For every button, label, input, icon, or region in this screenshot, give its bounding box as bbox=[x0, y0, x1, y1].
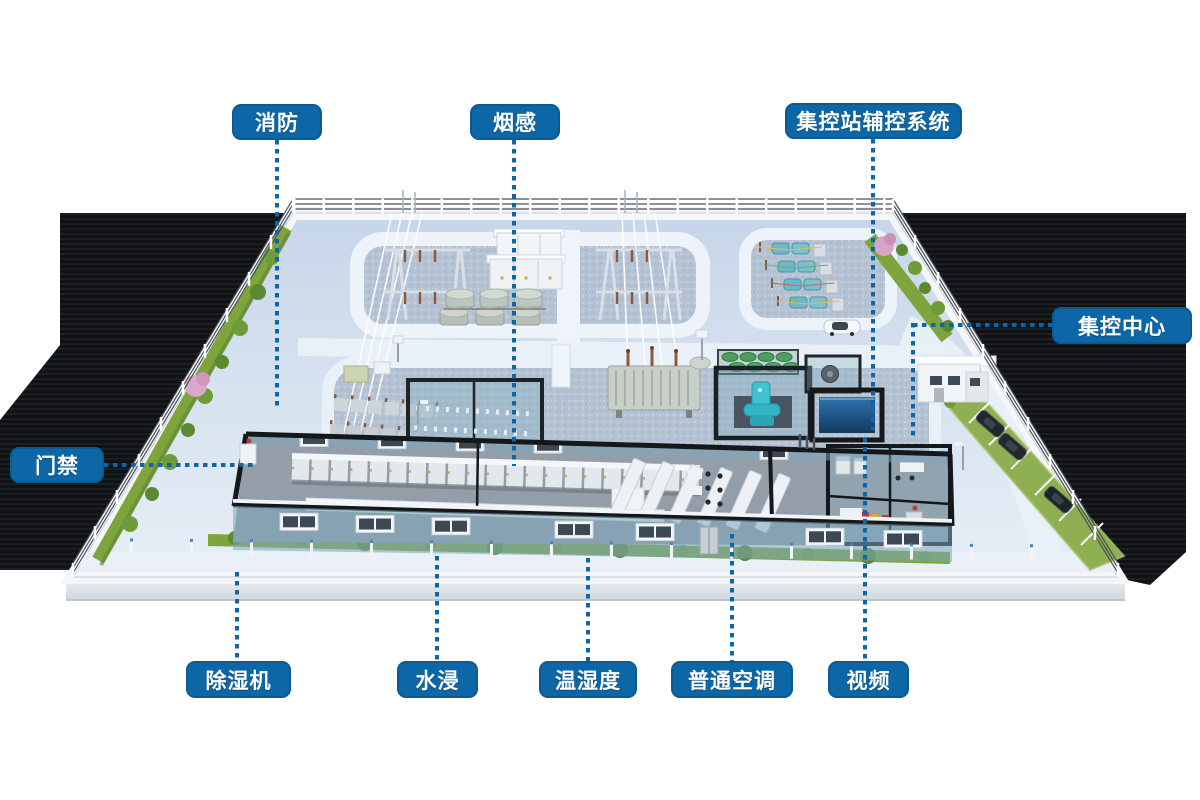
connector-access-control bbox=[104, 463, 253, 467]
connector-temperature-humidity bbox=[586, 558, 590, 661]
label-control-center[interactable]: 集控中心 bbox=[1052, 307, 1192, 344]
connector-standard-ac bbox=[730, 534, 734, 661]
label-video[interactable]: 视频 bbox=[828, 661, 909, 698]
switchyard-cabinets bbox=[487, 229, 565, 289]
label-water-leak[interactable]: 水浸 bbox=[397, 661, 478, 698]
robot-glass-room bbox=[716, 368, 810, 438]
white-car bbox=[824, 320, 860, 336]
connector-dehumidifier bbox=[235, 572, 239, 661]
label-fire[interactable]: 消防 bbox=[232, 104, 322, 140]
control-center-building bbox=[912, 356, 996, 402]
connector-fire bbox=[275, 140, 279, 408]
connector-control-center-v bbox=[911, 323, 915, 436]
connector-control-center-h bbox=[913, 323, 1052, 327]
label-access-control[interactable]: 门禁 bbox=[10, 447, 104, 483]
connector-video bbox=[863, 438, 867, 661]
round-table-glass-room bbox=[806, 356, 860, 392]
connector-aux-control-system bbox=[871, 139, 875, 430]
label-standard-ac[interactable]: 普通空调 bbox=[671, 661, 793, 698]
connector-water-leak bbox=[435, 556, 439, 661]
oil-tanks bbox=[440, 289, 546, 325]
label-smoke-detector[interactable]: 烟感 bbox=[470, 104, 560, 140]
label-temperature-humidity[interactable]: 温湿度 bbox=[539, 661, 637, 698]
label-aux-control-system[interactable]: 集控站辅控系统 bbox=[785, 103, 962, 139]
connector-smoke-detector bbox=[512, 140, 516, 466]
main-equipment-building bbox=[233, 434, 952, 562]
label-dehumidifier[interactable]: 除湿机 bbox=[186, 661, 291, 698]
page: 消防 烟感 集控站辅控系统 集控中心 门禁 除湿机 水浸 温湿度 普通空调 视频 bbox=[0, 0, 1200, 800]
